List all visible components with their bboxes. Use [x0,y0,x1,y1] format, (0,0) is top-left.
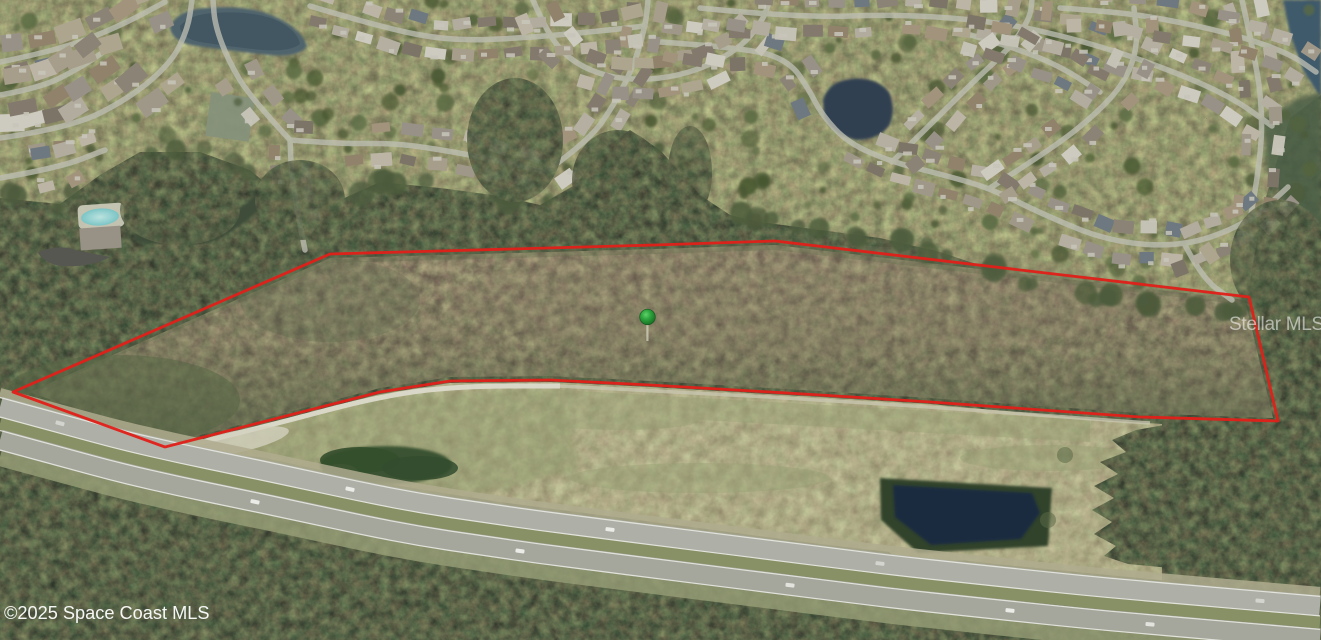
svg-text:Stellar MLS: Stellar MLS [1229,314,1321,335]
svg-text:©2025 Space Coast MLS: ©2025 Space Coast MLS [4,603,210,623]
